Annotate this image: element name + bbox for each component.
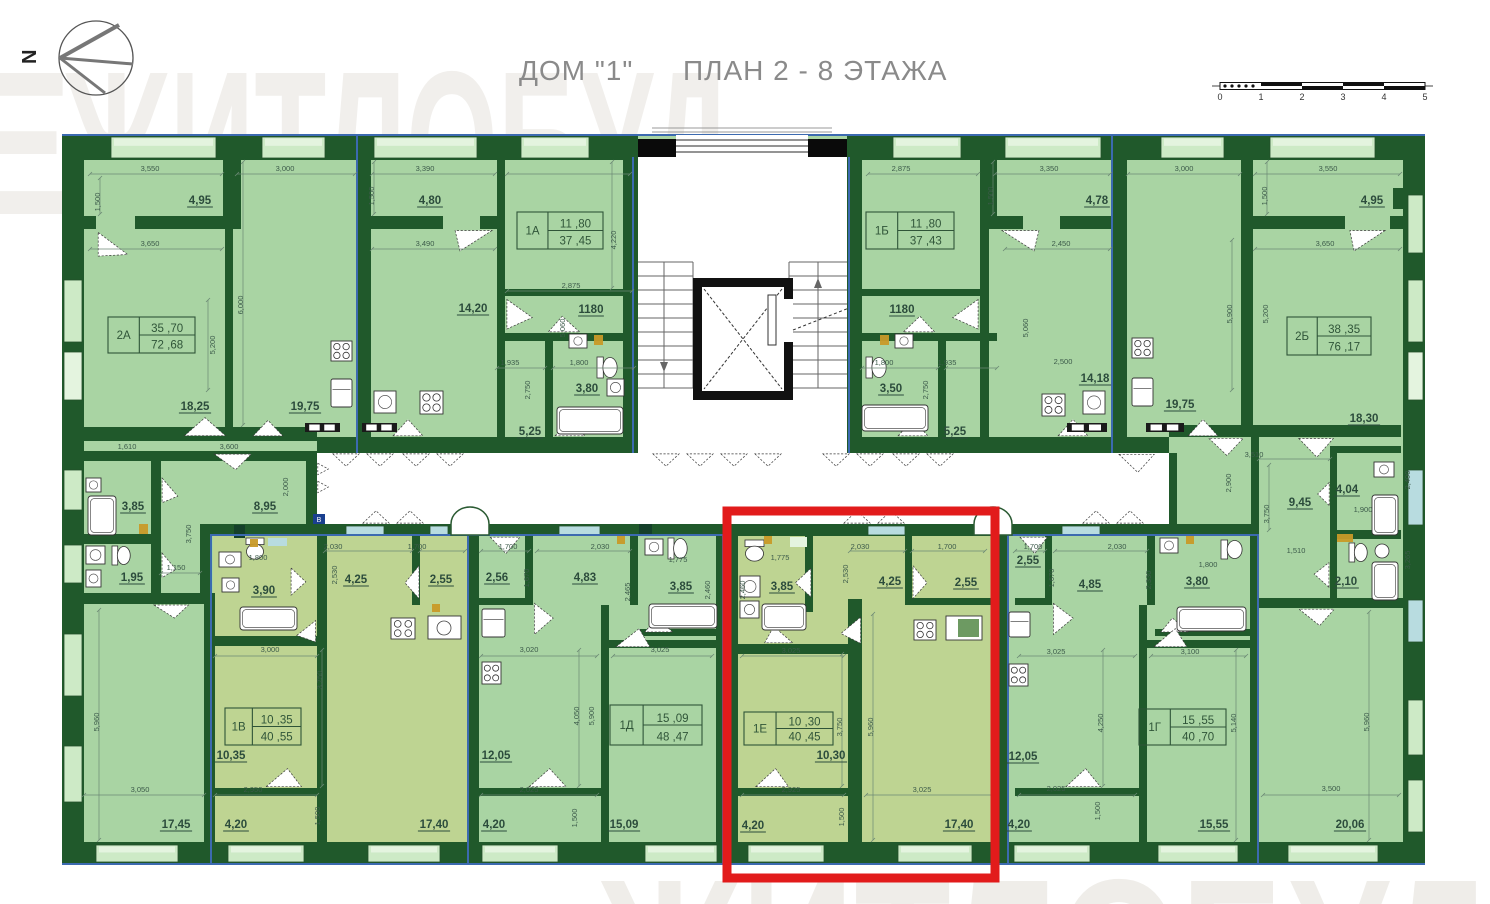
svg-text:17,40: 17,40 [945,819,974,831]
svg-text:2Б: 2Б [1295,331,1309,343]
svg-text:15,55: 15,55 [1200,819,1229,831]
svg-text:4,20: 4,20 [742,820,764,832]
svg-text:4,25: 4,25 [879,576,902,588]
svg-text:1,935: 1,935 [501,358,520,367]
svg-text:14,18: 14,18 [1081,373,1110,385]
svg-text:1,700: 1,700 [1024,542,1043,551]
svg-text:2,465: 2,465 [623,583,632,602]
svg-text:3,550: 3,550 [141,164,160,173]
svg-text:2,330: 2,330 [1144,571,1153,590]
svg-text:1В: 1В [232,722,246,734]
svg-text:0: 0 [1217,92,1222,102]
svg-text:2,400: 2,400 [1403,471,1412,490]
svg-text:3,85: 3,85 [122,501,145,513]
svg-text:3,000: 3,000 [261,645,280,654]
svg-text:2А: 2А [117,330,131,342]
svg-text:19,75: 19,75 [291,401,320,413]
svg-text:4,80: 4,80 [419,195,441,207]
svg-text:5,960: 5,960 [92,713,101,732]
svg-text:37 ,43: 37 ,43 [910,236,942,248]
svg-text:2,56: 2,56 [486,572,508,584]
svg-text:3,510: 3,510 [1245,450,1264,459]
svg-text:2,900: 2,900 [1224,474,1233,493]
svg-text:1Г: 1Г [1148,722,1161,734]
svg-text:1А: 1А [525,226,539,238]
svg-text:4,050: 4,050 [572,707,581,726]
svg-text:37 ,45: 37 ,45 [559,236,591,248]
svg-text:3,85: 3,85 [771,581,794,593]
svg-text:3,350: 3,350 [1040,164,1059,173]
svg-text:4,220: 4,220 [609,231,618,250]
svg-text:20,06: 20,06 [1336,819,1365,831]
svg-text:4,20: 4,20 [1008,819,1030,831]
svg-text:4,20: 4,20 [225,819,247,831]
svg-text:3,265: 3,265 [1403,551,1412,570]
svg-text:3,750: 3,750 [835,718,844,737]
svg-text:3,80: 3,80 [576,383,598,395]
svg-text:3,80: 3,80 [1186,576,1208,588]
svg-text:4,25: 4,25 [345,574,368,586]
svg-text:6,000: 6,000 [236,296,245,315]
svg-text:2,950: 2,950 [244,785,263,794]
svg-text:15 ,55: 15 ,55 [1182,715,1214,727]
svg-text:72 ,68: 72 ,68 [151,340,183,352]
svg-text:3,000: 3,000 [276,164,295,173]
svg-text:1,775: 1,775 [669,555,688,564]
svg-text:4,95: 4,95 [1361,195,1384,207]
svg-text:11 ,80: 11 ,80 [910,219,941,231]
svg-text:40 ,45: 40 ,45 [789,732,821,744]
svg-text:2,030: 2,030 [591,542,610,551]
svg-text:2,875: 2,875 [562,281,581,290]
svg-text:4,20: 4,20 [483,819,505,831]
svg-text:3,500: 3,500 [1322,784,1341,793]
svg-text:2,030: 2,030 [324,542,343,551]
svg-text:35 ,70: 35 ,70 [151,323,183,335]
svg-text:2,030: 2,030 [851,542,870,551]
svg-text:2,530: 2,530 [330,566,339,585]
svg-text:1,95: 1,95 [121,572,144,584]
svg-text:5,900: 5,900 [1225,305,1234,324]
svg-text:38 ,35: 38 ,35 [1328,324,1360,336]
svg-text:48 ,47: 48 ,47 [657,732,689,744]
svg-text:3,025: 3,025 [1047,647,1066,656]
svg-text:1,150: 1,150 [167,563,186,572]
svg-text:ДОМ "1": ДОМ "1" [519,55,633,86]
svg-text:1,800: 1,800 [249,553,268,562]
svg-text:8,95: 8,95 [254,501,277,513]
svg-text:2,030: 2,030 [1108,542,1127,551]
svg-text:5,200: 5,200 [208,336,217,355]
svg-text:3,100: 3,100 [1181,647,1200,656]
svg-text:76 ,17: 76 ,17 [1328,342,1360,354]
svg-text:1: 1 [1258,92,1263,102]
svg-text:4,85: 4,85 [1079,579,1102,591]
svg-text:12,05: 12,05 [482,750,511,762]
svg-text:3,85: 3,85 [670,581,693,593]
svg-text:15,09: 15,09 [610,819,639,831]
svg-text:1180: 1180 [890,304,915,316]
svg-text:B: B [317,517,322,524]
svg-text:4,78: 4,78 [1086,195,1109,207]
svg-text:12,05: 12,05 [1009,751,1038,763]
svg-text:2,750: 2,750 [921,381,930,400]
svg-text:5,25: 5,25 [519,426,542,438]
svg-text:5,060: 5,060 [558,319,567,338]
svg-text:1,500: 1,500 [313,807,322,826]
svg-text:2: 2 [1299,92,1304,102]
svg-text:5,960: 5,960 [866,718,875,737]
svg-text:2,750: 2,750 [523,381,532,400]
svg-text:3,50: 3,50 [880,383,902,395]
svg-text:1Б: 1Б [875,226,889,238]
svg-text:3,90: 3,90 [253,585,275,597]
svg-text:1,800: 1,800 [1199,560,1218,569]
svg-text:3,650: 3,650 [141,239,160,248]
svg-text:2,500: 2,500 [1054,357,1073,366]
svg-text:5,060: 5,060 [1021,319,1030,338]
svg-text:2,10: 2,10 [1335,576,1357,588]
svg-text:2,925: 2,925 [782,785,801,794]
svg-text:2,025: 2,025 [520,785,539,794]
svg-text:1,500: 1,500 [570,809,579,828]
svg-text:4,83: 4,83 [574,572,596,584]
svg-text:1180: 1180 [579,304,604,316]
svg-text:3,025: 3,025 [651,645,670,654]
svg-text:N: N [19,50,41,64]
svg-text:2,000: 2,000 [281,478,290,497]
svg-text:10,30: 10,30 [817,750,846,762]
svg-text:3,025: 3,025 [782,646,801,655]
svg-text:3,050: 3,050 [131,785,150,794]
svg-text:4,04: 4,04 [1336,484,1359,496]
svg-text:2,55: 2,55 [430,574,453,586]
svg-text:1,500: 1,500 [93,193,102,212]
svg-text:1,500: 1,500 [1093,802,1102,821]
svg-text:3,025: 3,025 [913,785,932,794]
svg-text:3,020: 3,020 [520,645,539,654]
svg-text:2,025: 2,025 [1047,784,1066,793]
svg-text:5,900: 5,900 [587,707,596,726]
svg-text:2,55: 2,55 [1017,555,1040,567]
svg-text:1,935: 1,935 [938,358,957,367]
svg-text:1Е: 1Е [753,724,767,736]
svg-text:3,600: 3,600 [220,442,239,451]
svg-text:1,800: 1,800 [875,358,894,367]
svg-text:2,55: 2,55 [955,577,978,589]
svg-text:1,510: 1,510 [1287,546,1306,555]
svg-text:5,960: 5,960 [1362,713,1371,732]
svg-text:2,450: 2,450 [1052,239,1071,248]
svg-text:14,20: 14,20 [459,303,488,315]
svg-text:1,670: 1,670 [1047,569,1056,588]
svg-text:5,25: 5,25 [944,426,967,438]
svg-text:5,140: 5,140 [1229,714,1238,733]
svg-text:1,610: 1,610 [118,442,137,451]
svg-text:15 ,09: 15 ,09 [657,713,689,725]
svg-text:3,550: 3,550 [1319,164,1338,173]
svg-text:10,35: 10,35 [217,750,246,762]
svg-text:3,650: 3,650 [1316,239,1335,248]
svg-text:1,700: 1,700 [499,542,518,551]
svg-text:3,390: 3,390 [416,164,435,173]
svg-text:1,775: 1,775 [771,553,790,562]
svg-text:19,75: 19,75 [1166,399,1195,411]
svg-text:3,000: 3,000 [1175,164,1194,173]
svg-text:40 ,55: 40 ,55 [261,732,293,744]
svg-text:1,500: 1,500 [367,187,376,206]
svg-text:17,45: 17,45 [162,819,191,831]
svg-text:4: 4 [1381,92,1386,102]
svg-text:17,40: 17,40 [420,819,449,831]
svg-text:4,250: 4,250 [1096,714,1105,733]
svg-text:11 ,80: 11 ,80 [560,219,591,231]
svg-text:2,530: 2,530 [841,565,850,584]
svg-text:1,700: 1,700 [408,542,427,551]
svg-text:4,95: 4,95 [189,195,212,207]
svg-text:5,200: 5,200 [1261,305,1270,324]
svg-text:1,700: 1,700 [938,542,957,551]
svg-text:3: 3 [1340,92,1345,102]
svg-text:3,750: 3,750 [315,671,324,690]
svg-text:10 ,30: 10 ,30 [789,717,821,729]
svg-text:18,25: 18,25 [181,401,210,413]
svg-text:5: 5 [1422,92,1427,102]
svg-text:10 ,35: 10 ,35 [261,715,293,727]
svg-text:3,750: 3,750 [1262,505,1271,524]
svg-text:1,500: 1,500 [986,187,995,206]
svg-text:2,460: 2,460 [738,581,747,600]
svg-text:1,670: 1,670 [522,569,531,588]
svg-text:1Д: 1Д [619,720,633,732]
svg-text:2,875: 2,875 [892,164,911,173]
svg-text:18,30: 18,30 [1350,413,1379,425]
svg-text:1,500: 1,500 [1260,187,1269,206]
svg-text:40 ,70: 40 ,70 [1182,732,1214,744]
svg-text:1,800: 1,800 [570,358,589,367]
svg-text:1,500: 1,500 [837,808,846,827]
svg-text:1,900: 1,900 [1354,505,1373,514]
svg-text:3,750: 3,750 [184,525,193,544]
svg-text:3,490: 3,490 [416,239,435,248]
svg-text:2,460: 2,460 [703,581,712,600]
svg-text:9,45: 9,45 [1289,497,1312,509]
svg-text:ПЛАН 2 - 8 ЭТАЖА: ПЛАН 2 - 8 ЭТАЖА [683,55,948,86]
